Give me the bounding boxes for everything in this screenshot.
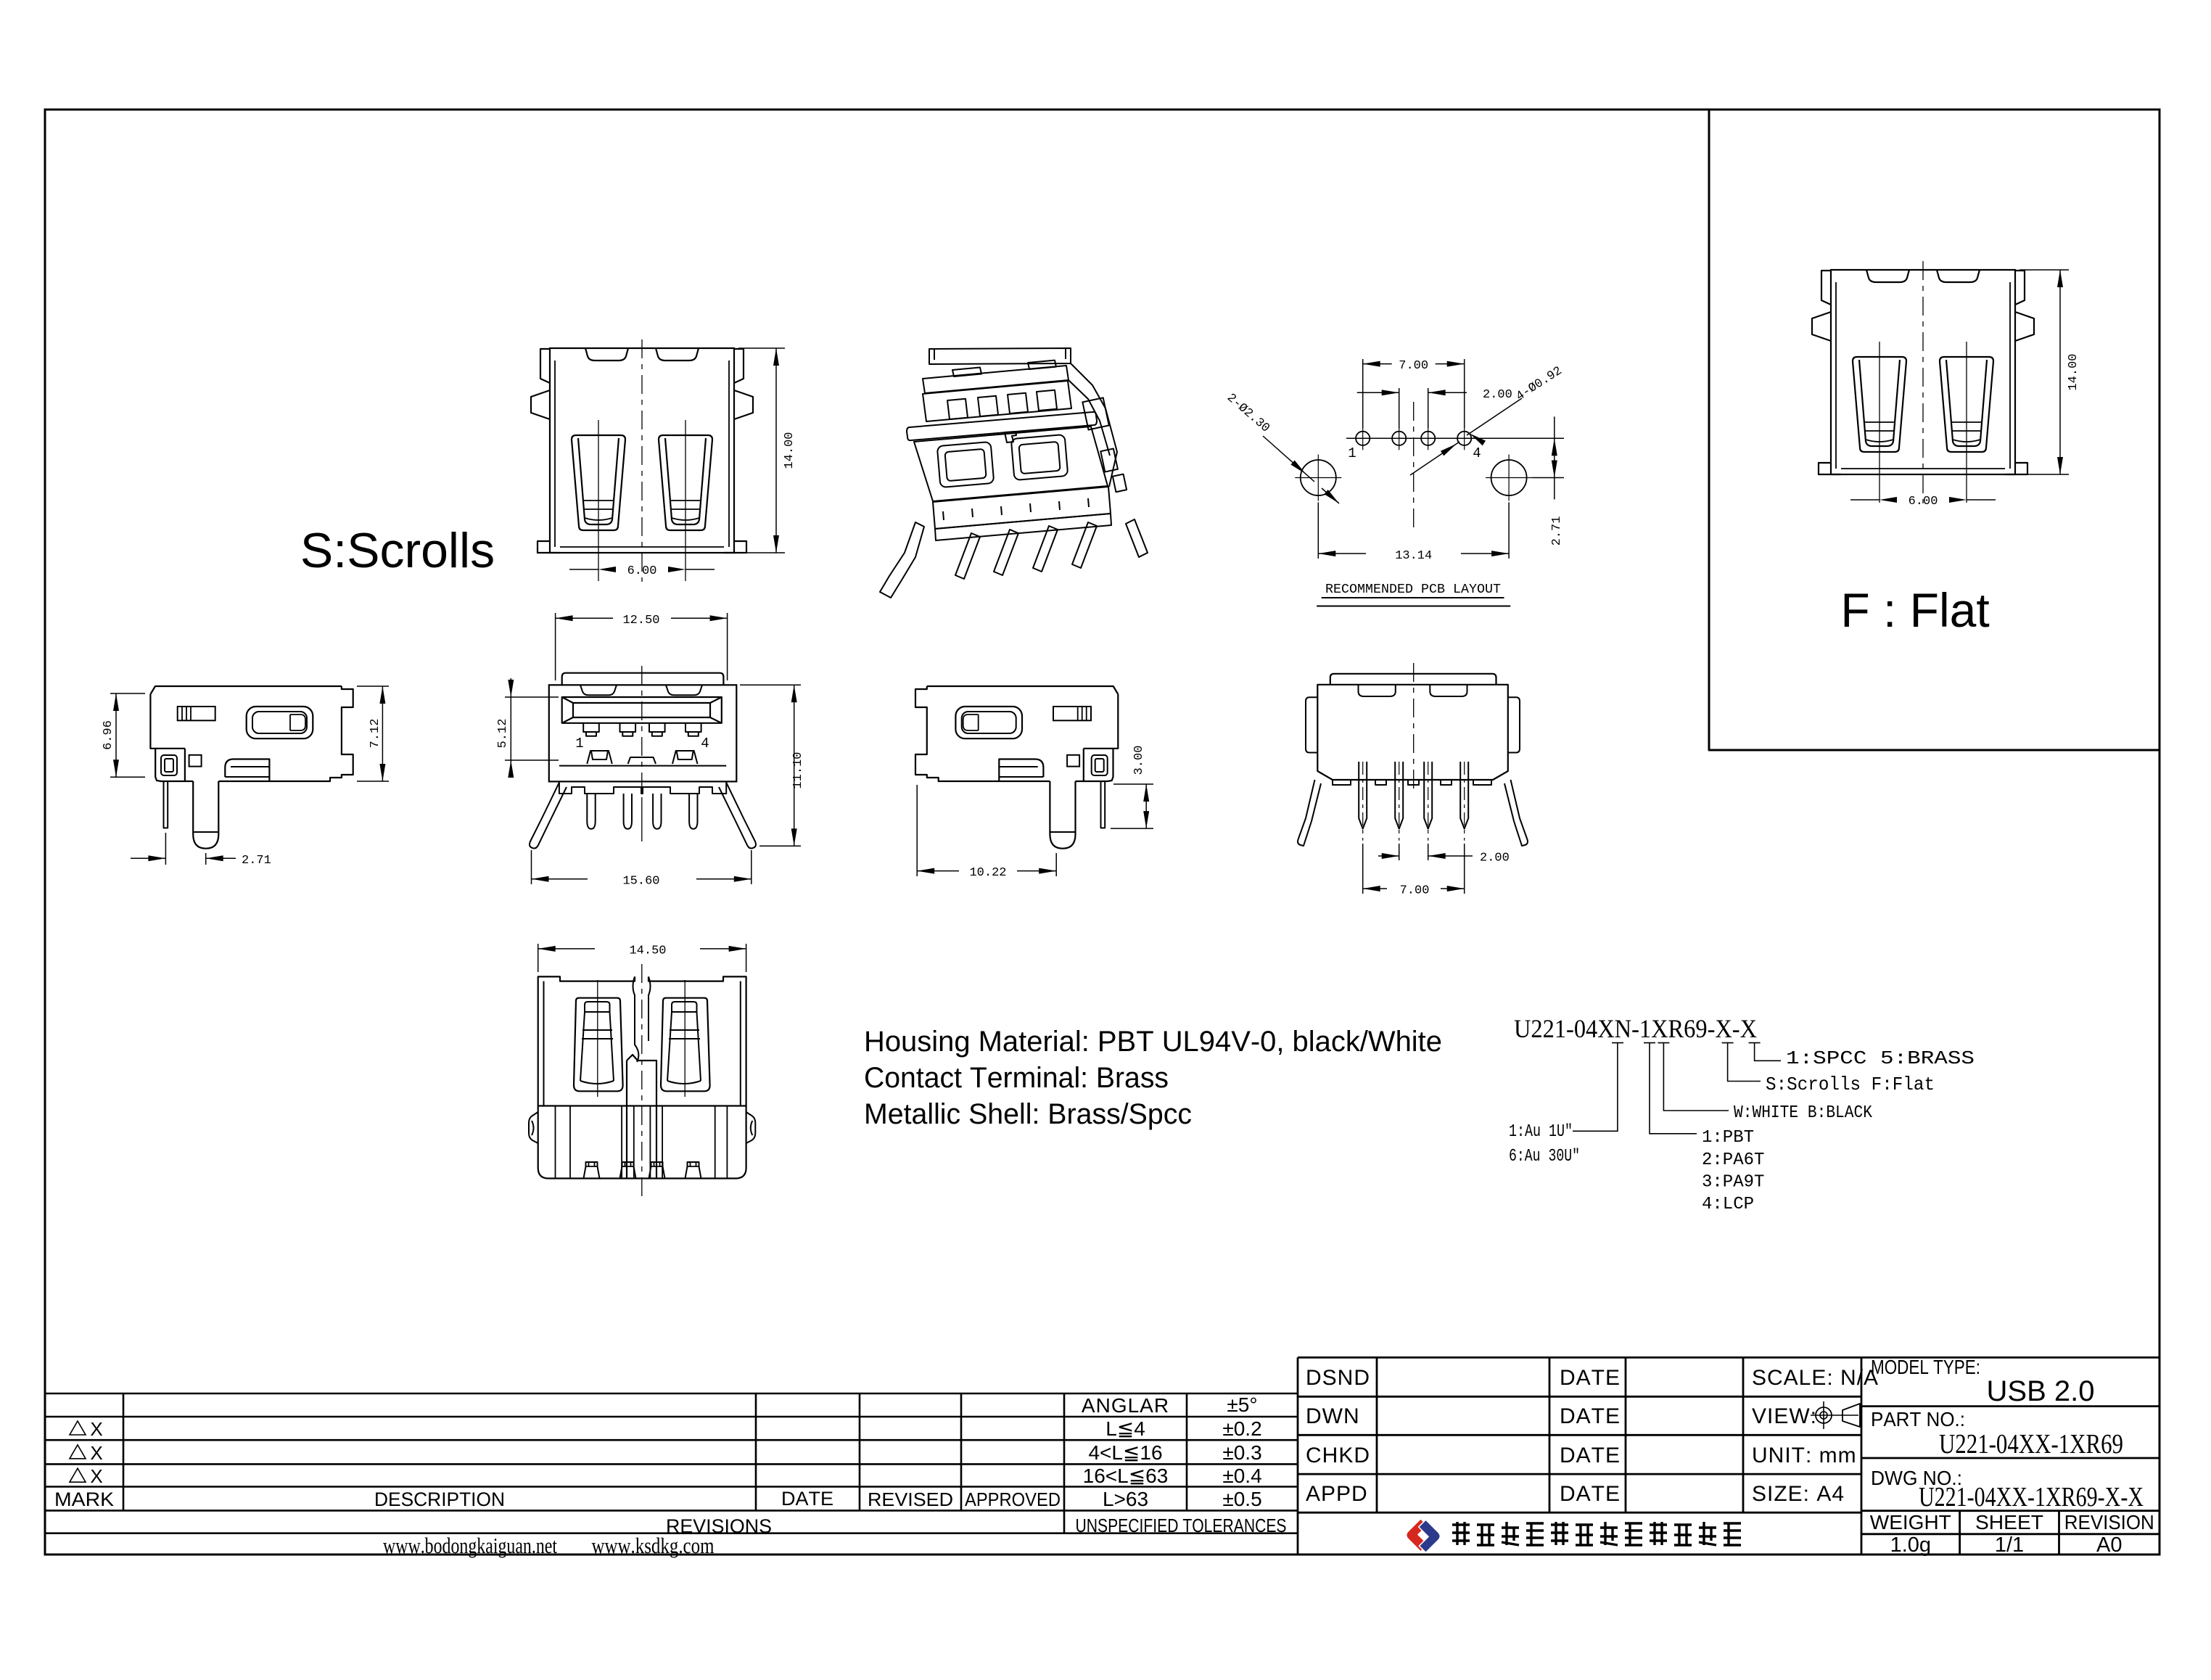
svg-text:DSND: DSND <box>1306 1366 1370 1390</box>
svg-text:www.bodongkaiguan.net: www.bodongkaiguan.net <box>383 1533 557 1558</box>
svg-text:1: 1 <box>575 736 583 752</box>
svg-text:1/1: 1/1 <box>1995 1533 2024 1557</box>
svg-text:UNSPECIFIED TOLERANCES: UNSPECIFIED TOLERANCES <box>1076 1515 1287 1536</box>
svg-text:±0.4: ±0.4 <box>1222 1465 1261 1487</box>
svg-text:DATE: DATE <box>1560 1482 1621 1506</box>
svg-text:X: X <box>90 1418 102 1440</box>
svg-text:Housing Material: PBT UL94V-0,: Housing Material: PBT UL94V-0, black/Whi… <box>864 1026 1442 1058</box>
svg-text:USB 2.0: USB 2.0 <box>1987 1375 2095 1407</box>
svg-text:SIZE: A4: SIZE: A4 <box>1752 1482 1845 1506</box>
svg-text:1:SPCC 5:BRASS: 1:SPCC 5:BRASS <box>1786 1047 1975 1069</box>
svg-text:X: X <box>90 1465 102 1487</box>
svg-text:SCALE: N/A: SCALE: N/A <box>1752 1366 1879 1390</box>
svg-text:12.50: 12.50 <box>622 614 659 627</box>
svg-text:1.0g: 1.0g <box>1890 1533 1931 1557</box>
svg-text:L>63: L>63 <box>1103 1488 1148 1510</box>
svg-text:DATE: DATE <box>1560 1366 1621 1390</box>
svg-text:S:Scrolls: S:Scrolls <box>300 523 495 578</box>
svg-text:16<L≦63: 16<L≦63 <box>1083 1465 1169 1487</box>
svg-text:11.10: 11.10 <box>791 752 805 788</box>
svg-text:U221-04XN-1XR69-X-X: U221-04XN-1XR69-X-X <box>1514 1014 1757 1043</box>
svg-text:DESCRIPTION: DESCRIPTION <box>374 1488 505 1510</box>
svg-text:5.12: 5.12 <box>496 719 510 749</box>
svg-text:REVISED: REVISED <box>868 1488 953 1510</box>
svg-text:www.ksdkg.com: www.ksdkg.com <box>592 1533 715 1558</box>
svg-text:±5°: ±5° <box>1227 1393 1257 1416</box>
svg-text:±0.2: ±0.2 <box>1222 1417 1261 1440</box>
svg-text:14.00: 14.00 <box>783 432 796 469</box>
svg-text:14.50: 14.50 <box>629 944 666 958</box>
svg-text:VIEW:: VIEW: <box>1752 1404 1817 1428</box>
svg-text:6:Au 30U″: 6:Au 30U″ <box>1509 1147 1580 1166</box>
svg-text:F : Flat: F : Flat <box>1840 583 1989 637</box>
svg-text:Metallic Shell: Brass/Spcc: Metallic Shell: Brass/Spcc <box>864 1098 1192 1130</box>
svg-text:CHKD: CHKD <box>1306 1444 1370 1467</box>
svg-text:7.12: 7.12 <box>368 719 382 749</box>
svg-text:APPROVED: APPROVED <box>965 1488 1061 1510</box>
svg-text:SHEET: SHEET <box>1975 1511 2043 1533</box>
svg-text:MODEL TYPE:: MODEL TYPE: <box>1871 1356 1980 1378</box>
svg-text:3:PA9T: 3:PA9T <box>1702 1173 1764 1193</box>
svg-text:S:Scrolls F:Flat: S:Scrolls F:Flat <box>1766 1074 1935 1095</box>
svg-text:1:PBT: 1:PBT <box>1702 1128 1754 1148</box>
svg-text:MARK: MARK <box>54 1488 114 1510</box>
svg-text:A0: A0 <box>2096 1533 2122 1557</box>
svg-text:DATE: DATE <box>781 1488 833 1510</box>
svg-text:14.00: 14.00 <box>2067 353 2080 390</box>
svg-text:PART NO.:: PART NO.: <box>1871 1408 1965 1430</box>
svg-text:U221-04XX-1XR69-X-X: U221-04XX-1XR69-X-X <box>1919 1482 2144 1512</box>
svg-text:APPD: APPD <box>1306 1482 1368 1506</box>
svg-text:RECOMMENDED PCB LAYOUT: RECOMMENDED PCB LAYOUT <box>1325 582 1501 597</box>
svg-text:6.00: 6.00 <box>627 564 657 578</box>
svg-text:3.00: 3.00 <box>1132 746 1146 775</box>
svg-text:7.00: 7.00 <box>1399 359 1428 373</box>
svg-text:DATE: DATE <box>1560 1404 1621 1428</box>
svg-text:ANGLAR: ANGLAR <box>1082 1394 1169 1417</box>
svg-text:W:WHITE B:BLACK: W:WHITE B:BLACK <box>1734 1103 1873 1123</box>
svg-text:2.71: 2.71 <box>1550 516 1564 546</box>
svg-text:15.60: 15.60 <box>622 874 659 888</box>
svg-text:REVISION: REVISION <box>2064 1511 2154 1533</box>
svg-text:2.00: 2.00 <box>1480 852 1510 865</box>
svg-text:DATE: DATE <box>1560 1444 1621 1467</box>
svg-text:2.00: 2.00 <box>1483 388 1512 402</box>
svg-text:L≦4: L≦4 <box>1105 1417 1145 1440</box>
svg-text:WEIGHT: WEIGHT <box>1870 1511 1951 1533</box>
svg-text:±0.5: ±0.5 <box>1222 1488 1261 1510</box>
svg-text:4: 4 <box>1473 445 1481 461</box>
svg-text:2:PA6T: 2:PA6T <box>1702 1150 1764 1170</box>
svg-text:4:LCP: 4:LCP <box>1702 1195 1754 1214</box>
svg-text:1:Au 1U″: 1:Au 1U″ <box>1509 1122 1573 1142</box>
svg-text:Contact Terminal: Brass: Contact Terminal: Brass <box>864 1062 1169 1094</box>
svg-text:UNIT: mm: UNIT: mm <box>1752 1444 1857 1467</box>
svg-text:6.96: 6.96 <box>102 720 115 750</box>
svg-text:1: 1 <box>1348 445 1356 461</box>
svg-text:2.71: 2.71 <box>242 854 271 868</box>
svg-text:±0.3: ±0.3 <box>1222 1441 1261 1464</box>
svg-text:4: 4 <box>701 736 709 752</box>
svg-text:6.00: 6.00 <box>1909 495 1938 508</box>
svg-text:U221-04XX-1XR69: U221-04XX-1XR69 <box>1939 1429 2123 1459</box>
svg-text:7.00: 7.00 <box>1400 884 1430 898</box>
svg-text:X: X <box>90 1442 102 1464</box>
svg-text:10.22: 10.22 <box>969 866 1006 880</box>
svg-text:DWN: DWN <box>1306 1404 1360 1428</box>
svg-text:4<L≦16: 4<L≦16 <box>1088 1441 1162 1464</box>
svg-text:13.14: 13.14 <box>1395 549 1432 563</box>
